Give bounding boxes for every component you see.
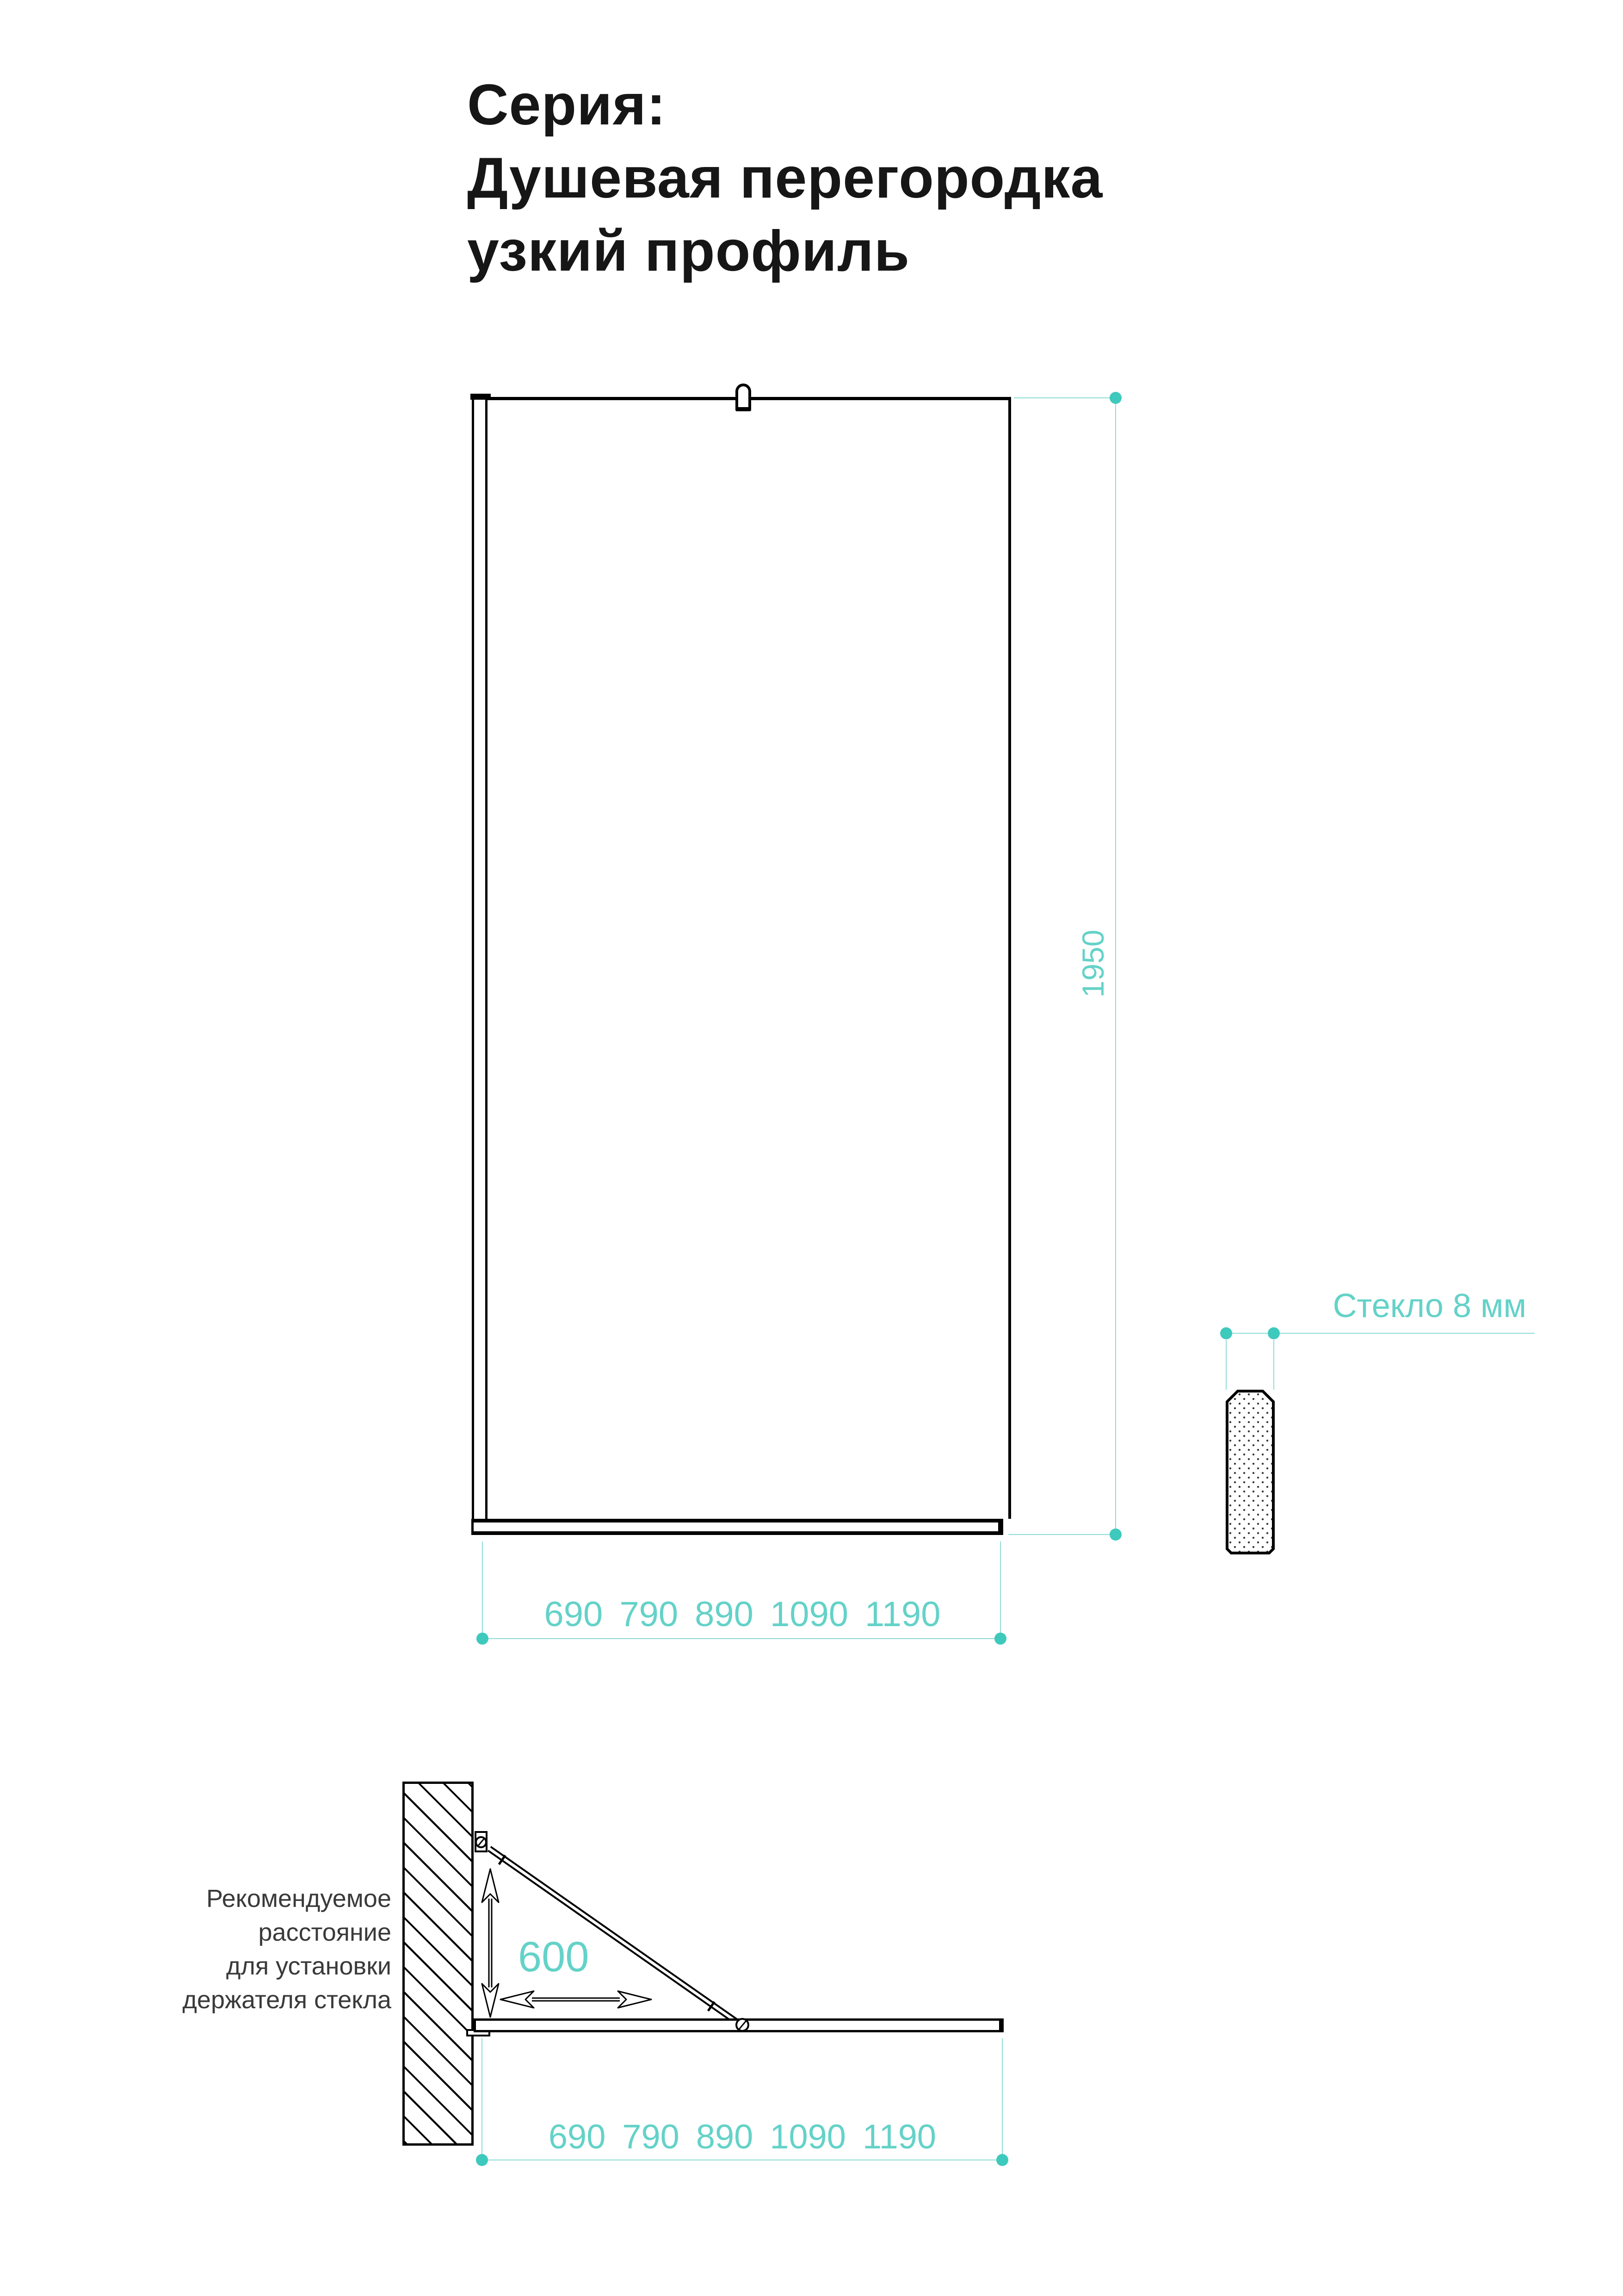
side-width-dim-line xyxy=(482,2160,1003,2160)
wall-profile-outer-line xyxy=(472,397,474,1519)
height-dim-dot-top xyxy=(1110,392,1122,404)
height-dim-top-connector xyxy=(1014,397,1115,398)
width-dim-ext-left xyxy=(482,1541,483,1644)
glass-right-edge xyxy=(1008,397,1011,1519)
glass-thickness-dot-left xyxy=(1220,1327,1232,1339)
note-line-3: для установки xyxy=(174,1949,391,1983)
width-dim-line xyxy=(482,1638,1001,1639)
holder-distance-label: 600 xyxy=(518,1933,589,1981)
horizontal-double-arrow-icon xyxy=(499,1985,653,2014)
height-dim-line xyxy=(1115,398,1116,1535)
wall-hatch xyxy=(402,1782,474,2146)
side-width-dot-left xyxy=(476,2154,488,2166)
width-option: 1190 xyxy=(865,1594,940,1634)
title-line-2: Душевая перегородка xyxy=(467,142,1103,215)
width-option: 1190 xyxy=(863,2117,936,2156)
width-options-row: 690 790 890 1090 1190 xyxy=(532,1594,953,1634)
title-line-1: Серия: xyxy=(467,68,1103,142)
side-width-ext-left xyxy=(481,2038,482,2155)
width-option: 690 xyxy=(544,1594,603,1634)
width-dim-dot-right xyxy=(994,1633,1006,1645)
support-bar-cap-wall xyxy=(498,1855,506,1865)
holder-note: Рекомендуемое расстояние для установки д… xyxy=(174,1882,391,2017)
width-dim-dot-left xyxy=(476,1633,488,1645)
note-line-4: держателя стекла xyxy=(174,1983,391,2017)
height-dim-label: 1950 xyxy=(1077,904,1109,1024)
support-bar-cap-glass xyxy=(707,2001,716,2012)
screw-slot-icon xyxy=(477,1838,485,1847)
page-title: Серия: Душевая перегородка узкий профиль xyxy=(467,68,1103,288)
side-width-options-row: 690 790 890 1090 1190 xyxy=(532,2117,953,2156)
glass-slab-outline xyxy=(1226,1390,1275,1554)
width-dim-ext-right xyxy=(1000,1541,1001,1644)
wall-holder-screw xyxy=(475,1836,487,1848)
width-option: 1090 xyxy=(770,2117,846,2156)
glass-thickness-label: Стекло 8 мм xyxy=(1203,1287,1526,1325)
side-width-ext-right xyxy=(1002,2038,1003,2155)
width-option: 890 xyxy=(696,2117,753,2156)
height-dim-dot-bottom xyxy=(1110,1529,1122,1541)
drawing-sheet: Серия: Душевая перегородка узкий профиль… xyxy=(0,0,1623,2296)
width-option: 1090 xyxy=(770,1594,848,1634)
bottom-profile-bar xyxy=(471,1519,1003,1535)
width-option: 790 xyxy=(619,1594,678,1634)
side-width-dot-right xyxy=(996,2154,1008,2166)
note-line-1: Рекомендуемое xyxy=(174,1882,391,1916)
height-dim-bottom-connector xyxy=(1008,1534,1115,1535)
width-option: 890 xyxy=(695,1594,753,1634)
width-option: 790 xyxy=(622,2117,679,2156)
glass-thickness-ext-right xyxy=(1273,1340,1274,1390)
title-line-3: узкий профиль xyxy=(467,215,1103,288)
top-hook-bracket xyxy=(735,384,751,411)
screw-slot-icon xyxy=(738,2019,747,2030)
glass-thickness-ext-left xyxy=(1226,1340,1227,1390)
glass-clamp-screw xyxy=(735,2018,749,2032)
wall-profile-inner-line xyxy=(485,397,488,1519)
width-option: 690 xyxy=(549,2117,605,2156)
glass-thickness-dot-right xyxy=(1268,1327,1280,1339)
note-line-2: расстояние xyxy=(174,1916,391,1949)
